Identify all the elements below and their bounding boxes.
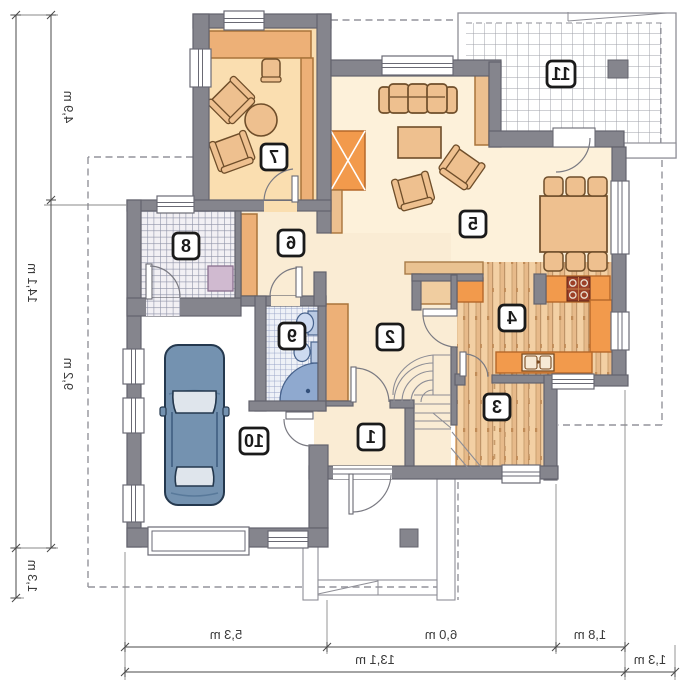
svg-text:1,3 m: 1,3 m [634,652,667,667]
svg-text:1: 1 [366,427,376,447]
svg-text:6,0 m: 6,0 m [425,627,458,642]
svg-text:13,1 m: 13,1 m [355,652,395,667]
svg-text:4: 4 [507,308,517,328]
svg-text:3: 3 [492,397,502,417]
svg-text:1,8 m: 1,8 m [574,627,607,642]
svg-text:5: 5 [468,214,478,234]
svg-text:9,2 m: 9,2 m [61,358,76,391]
svg-text:4,9 m: 4,9 m [61,91,76,124]
svg-text:11: 11 [551,64,570,84]
svg-text:6: 6 [286,233,296,253]
svg-text:5,3 m: 5,3 m [210,627,243,642]
svg-text:9: 9 [287,326,297,346]
svg-text:1,3 m: 1,3 m [25,560,40,593]
svg-text:7: 7 [269,147,279,167]
svg-text:14,1 m: 14,1 m [25,263,40,303]
svg-text:8: 8 [181,236,191,256]
svg-text:10: 10 [244,431,264,451]
svg-text:2: 2 [385,327,395,347]
